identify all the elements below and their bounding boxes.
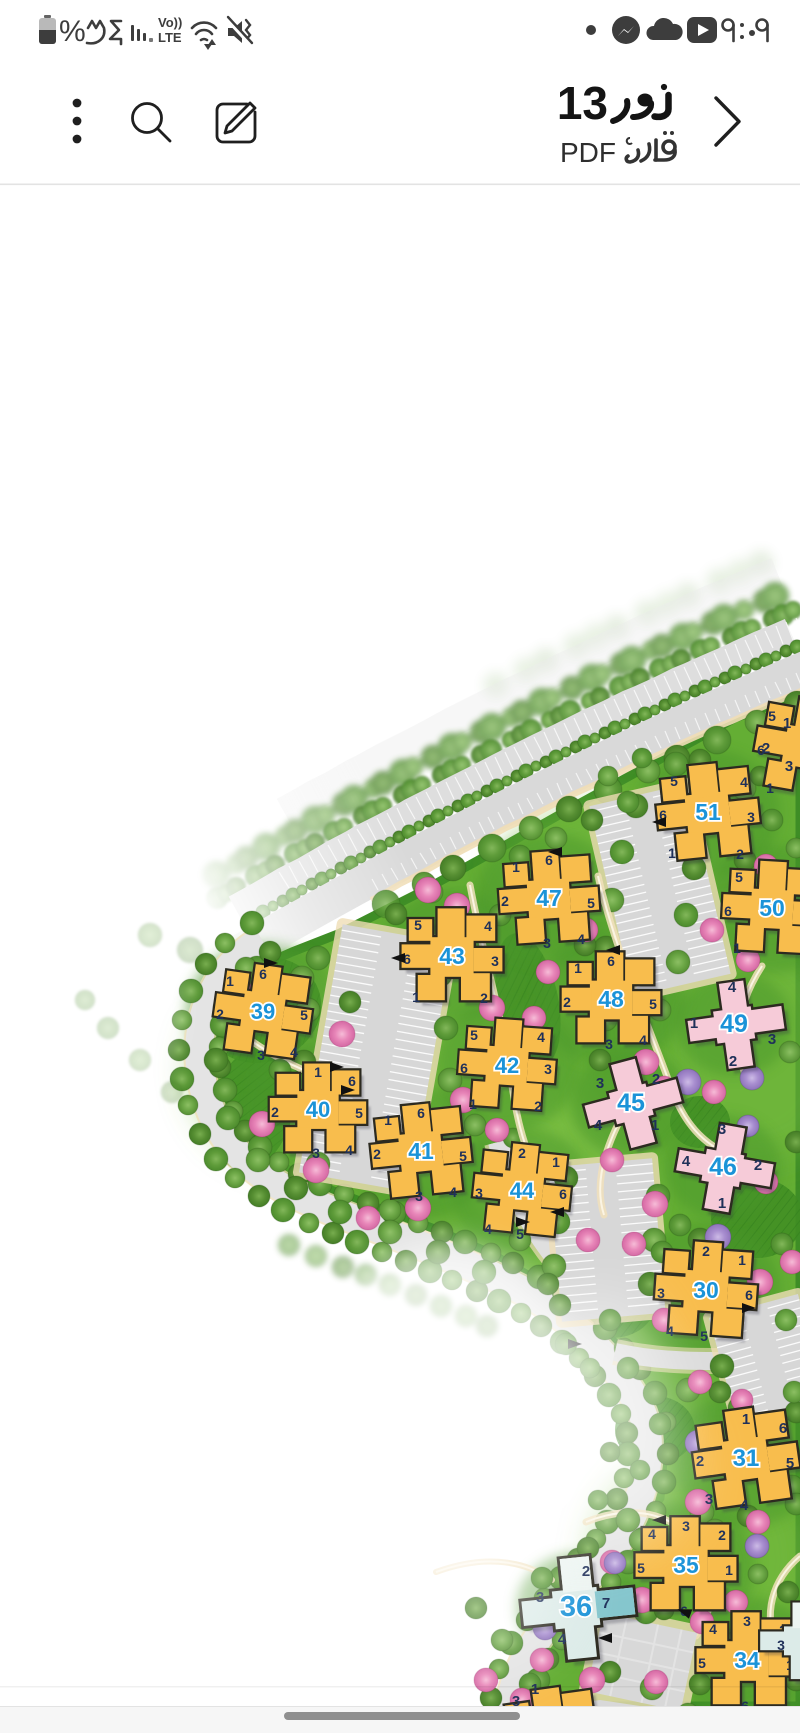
svg-text:2: 2	[754, 1157, 762, 1174]
svg-text:4: 4	[290, 1044, 298, 1060]
svg-text:3: 3	[747, 809, 755, 825]
svg-text:3: 3	[415, 1188, 423, 1204]
svg-text:46: 46	[709, 1153, 737, 1181]
svg-text:3: 3	[768, 1031, 776, 1048]
svg-text:3: 3	[257, 1047, 265, 1063]
svg-text:49: 49	[720, 1010, 748, 1038]
svg-text:6: 6	[779, 1420, 787, 1437]
svg-text:2: 2	[480, 990, 488, 1006]
svg-text:%: %	[59, 15, 86, 48]
svg-text:PDF: PDF	[560, 137, 616, 168]
svg-text:5: 5	[700, 1328, 708, 1344]
svg-text:5: 5	[768, 708, 776, 724]
svg-text:1: 1	[742, 1411, 750, 1428]
svg-text:50: 50	[759, 895, 785, 921]
svg-text:6: 6	[259, 966, 267, 982]
svg-text:4: 4	[345, 1142, 353, 1158]
svg-text:2: 2	[729, 1053, 737, 1070]
svg-text:1: 1	[469, 1096, 477, 1112]
svg-text:3: 3	[718, 1121, 726, 1138]
svg-text:42: 42	[495, 1053, 519, 1078]
svg-text:30: 30	[693, 1277, 719, 1303]
svg-text:45: 45	[617, 1089, 645, 1117]
svg-text:3: 3	[543, 935, 551, 951]
svg-text:4: 4	[537, 1029, 545, 1045]
svg-text:2: 2	[762, 740, 770, 757]
svg-text:1: 1	[783, 715, 791, 732]
svg-text:6: 6	[724, 903, 732, 919]
svg-text:3: 3	[491, 953, 499, 969]
svg-text:5: 5	[786, 1455, 794, 1472]
svg-text:5: 5	[649, 996, 657, 1012]
svg-text:4: 4	[639, 1032, 647, 1048]
svg-text:2: 2	[518, 1145, 526, 1161]
svg-text:3: 3	[657, 1285, 665, 1301]
svg-text:4: 4	[484, 918, 492, 934]
svg-text:2: 2	[652, 1071, 660, 1088]
svg-text:2: 2	[534, 1098, 542, 1114]
svg-text:1: 1	[738, 1252, 746, 1268]
svg-text:34: 34	[734, 1647, 760, 1673]
svg-text:3: 3	[785, 758, 793, 775]
svg-text:7: 7	[602, 1595, 610, 1612]
svg-text:1: 1	[690, 1015, 698, 1032]
svg-text:3: 3	[743, 1613, 751, 1629]
svg-text:2: 2	[501, 893, 509, 909]
svg-text:4: 4	[666, 1323, 674, 1339]
svg-text:2: 2	[563, 994, 571, 1010]
svg-text:Vo)): Vo))	[158, 15, 182, 30]
svg-text:35: 35	[673, 1552, 699, 1578]
svg-text:4: 4	[449, 1184, 457, 1200]
svg-text:13: 13	[557, 77, 608, 129]
svg-text:5: 5	[355, 1105, 363, 1121]
svg-text:31: 31	[733, 1445, 760, 1472]
svg-text:3: 3	[705, 1491, 713, 1508]
svg-text:3: 3	[475, 1185, 483, 1201]
svg-text:1: 1	[384, 1112, 392, 1128]
svg-text:2: 2	[271, 1104, 279, 1120]
svg-text:2: 2	[216, 1006, 224, 1022]
svg-text:5: 5	[637, 1560, 645, 1576]
svg-text:1: 1	[552, 1154, 560, 1170]
svg-text:1: 1	[725, 1562, 733, 1578]
svg-text:43: 43	[439, 943, 465, 969]
svg-text:1: 1	[574, 960, 582, 976]
svg-text:4: 4	[709, 1621, 717, 1637]
svg-text:LTE: LTE	[158, 30, 182, 45]
svg-text:6: 6	[559, 1186, 567, 1202]
svg-text:1: 1	[766, 780, 774, 796]
svg-text:2: 2	[696, 1453, 704, 1470]
svg-text:1: 1	[412, 989, 420, 1005]
svg-text:1: 1	[512, 859, 520, 875]
svg-text:1: 1	[314, 1064, 322, 1080]
svg-text:1: 1	[651, 1117, 659, 1134]
svg-text:4: 4	[577, 931, 585, 947]
svg-text:4: 4	[484, 1221, 492, 1237]
svg-text:39: 39	[251, 999, 275, 1024]
svg-text:4: 4	[728, 979, 737, 996]
svg-text:6: 6	[545, 852, 553, 868]
svg-text:3: 3	[312, 1145, 320, 1161]
svg-text:3: 3	[605, 1036, 613, 1052]
svg-text:5: 5	[587, 895, 595, 911]
svg-text:3: 3	[596, 1075, 604, 1092]
svg-text:2: 2	[736, 846, 744, 862]
svg-text:41: 41	[408, 1138, 434, 1164]
svg-text:4: 4	[594, 1117, 603, 1134]
svg-text:6: 6	[460, 1060, 468, 1076]
svg-text:6: 6	[417, 1105, 425, 1121]
svg-text:5: 5	[300, 1007, 308, 1023]
svg-text:40: 40	[306, 1097, 330, 1122]
svg-text:2: 2	[373, 1146, 381, 1162]
svg-text:5: 5	[459, 1148, 467, 1164]
svg-text:3: 3	[682, 1518, 690, 1534]
svg-text:1: 1	[531, 1681, 539, 1698]
svg-text:51: 51	[695, 799, 721, 825]
svg-text:6: 6	[348, 1073, 356, 1089]
svg-text:5: 5	[670, 773, 678, 789]
svg-text:1: 1	[733, 940, 741, 956]
svg-text:44: 44	[510, 1178, 535, 1203]
svg-text:4: 4	[740, 774, 748, 790]
svg-text:6: 6	[741, 1698, 749, 1706]
svg-text:5: 5	[470, 1027, 478, 1043]
svg-text:2: 2	[718, 1527, 726, 1543]
svg-text:3: 3	[544, 1061, 552, 1077]
svg-text:5: 5	[414, 917, 422, 933]
svg-text:47: 47	[536, 885, 562, 911]
svg-text:5: 5	[735, 869, 743, 885]
svg-text:6: 6	[745, 1287, 753, 1303]
svg-text:1: 1	[718, 1195, 726, 1212]
svg-text:3: 3	[512, 1693, 520, 1706]
svg-text:6: 6	[607, 953, 615, 969]
svg-text:1: 1	[668, 845, 676, 861]
svg-text:5: 5	[698, 1655, 706, 1671]
svg-text:4: 4	[558, 1631, 567, 1648]
svg-text:4: 4	[740, 1497, 749, 1514]
svg-text:5: 5	[516, 1226, 524, 1242]
svg-text:48: 48	[598, 986, 624, 1012]
svg-text:2: 2	[702, 1243, 710, 1259]
svg-text:3: 3	[777, 1637, 785, 1653]
svg-text:1: 1	[226, 973, 234, 989]
svg-text:2: 2	[582, 1563, 590, 1580]
svg-text:4: 4	[682, 1153, 691, 1170]
